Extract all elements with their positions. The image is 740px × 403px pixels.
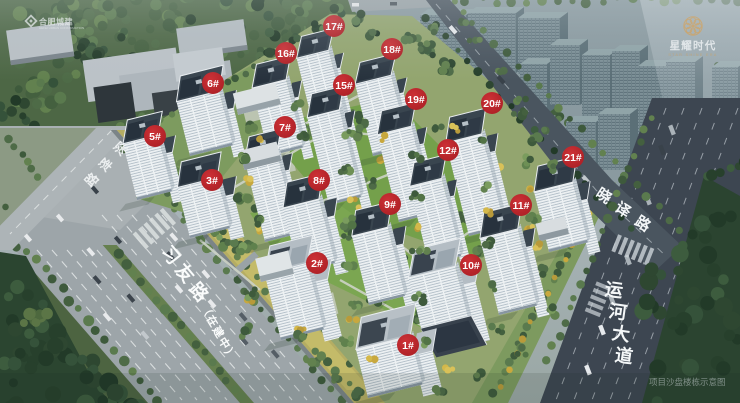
svg-text:9#: 9# bbox=[384, 199, 396, 211]
svg-text:大: 大 bbox=[611, 322, 632, 345]
svg-text:2#: 2# bbox=[311, 258, 323, 270]
svg-text:10#: 10# bbox=[462, 260, 480, 272]
svg-text:运: 运 bbox=[604, 279, 625, 301]
svg-text:5#: 5# bbox=[149, 131, 161, 143]
svg-text:11#: 11# bbox=[513, 200, 530, 212]
svg-text:河: 河 bbox=[608, 301, 629, 323]
svg-text:12#: 12# bbox=[439, 145, 457, 157]
svg-text:3#: 3# bbox=[206, 175, 218, 187]
svg-text:7#: 7# bbox=[279, 122, 291, 134]
svg-text:8#: 8# bbox=[313, 175, 325, 187]
svg-text:21#: 21# bbox=[564, 152, 582, 164]
svg-text:20#: 20# bbox=[483, 98, 501, 110]
svg-text:19#: 19# bbox=[407, 94, 425, 106]
svg-text:道: 道 bbox=[614, 344, 635, 367]
svg-text:15#: 15# bbox=[335, 80, 353, 92]
svg-text:1#: 1# bbox=[402, 340, 414, 352]
